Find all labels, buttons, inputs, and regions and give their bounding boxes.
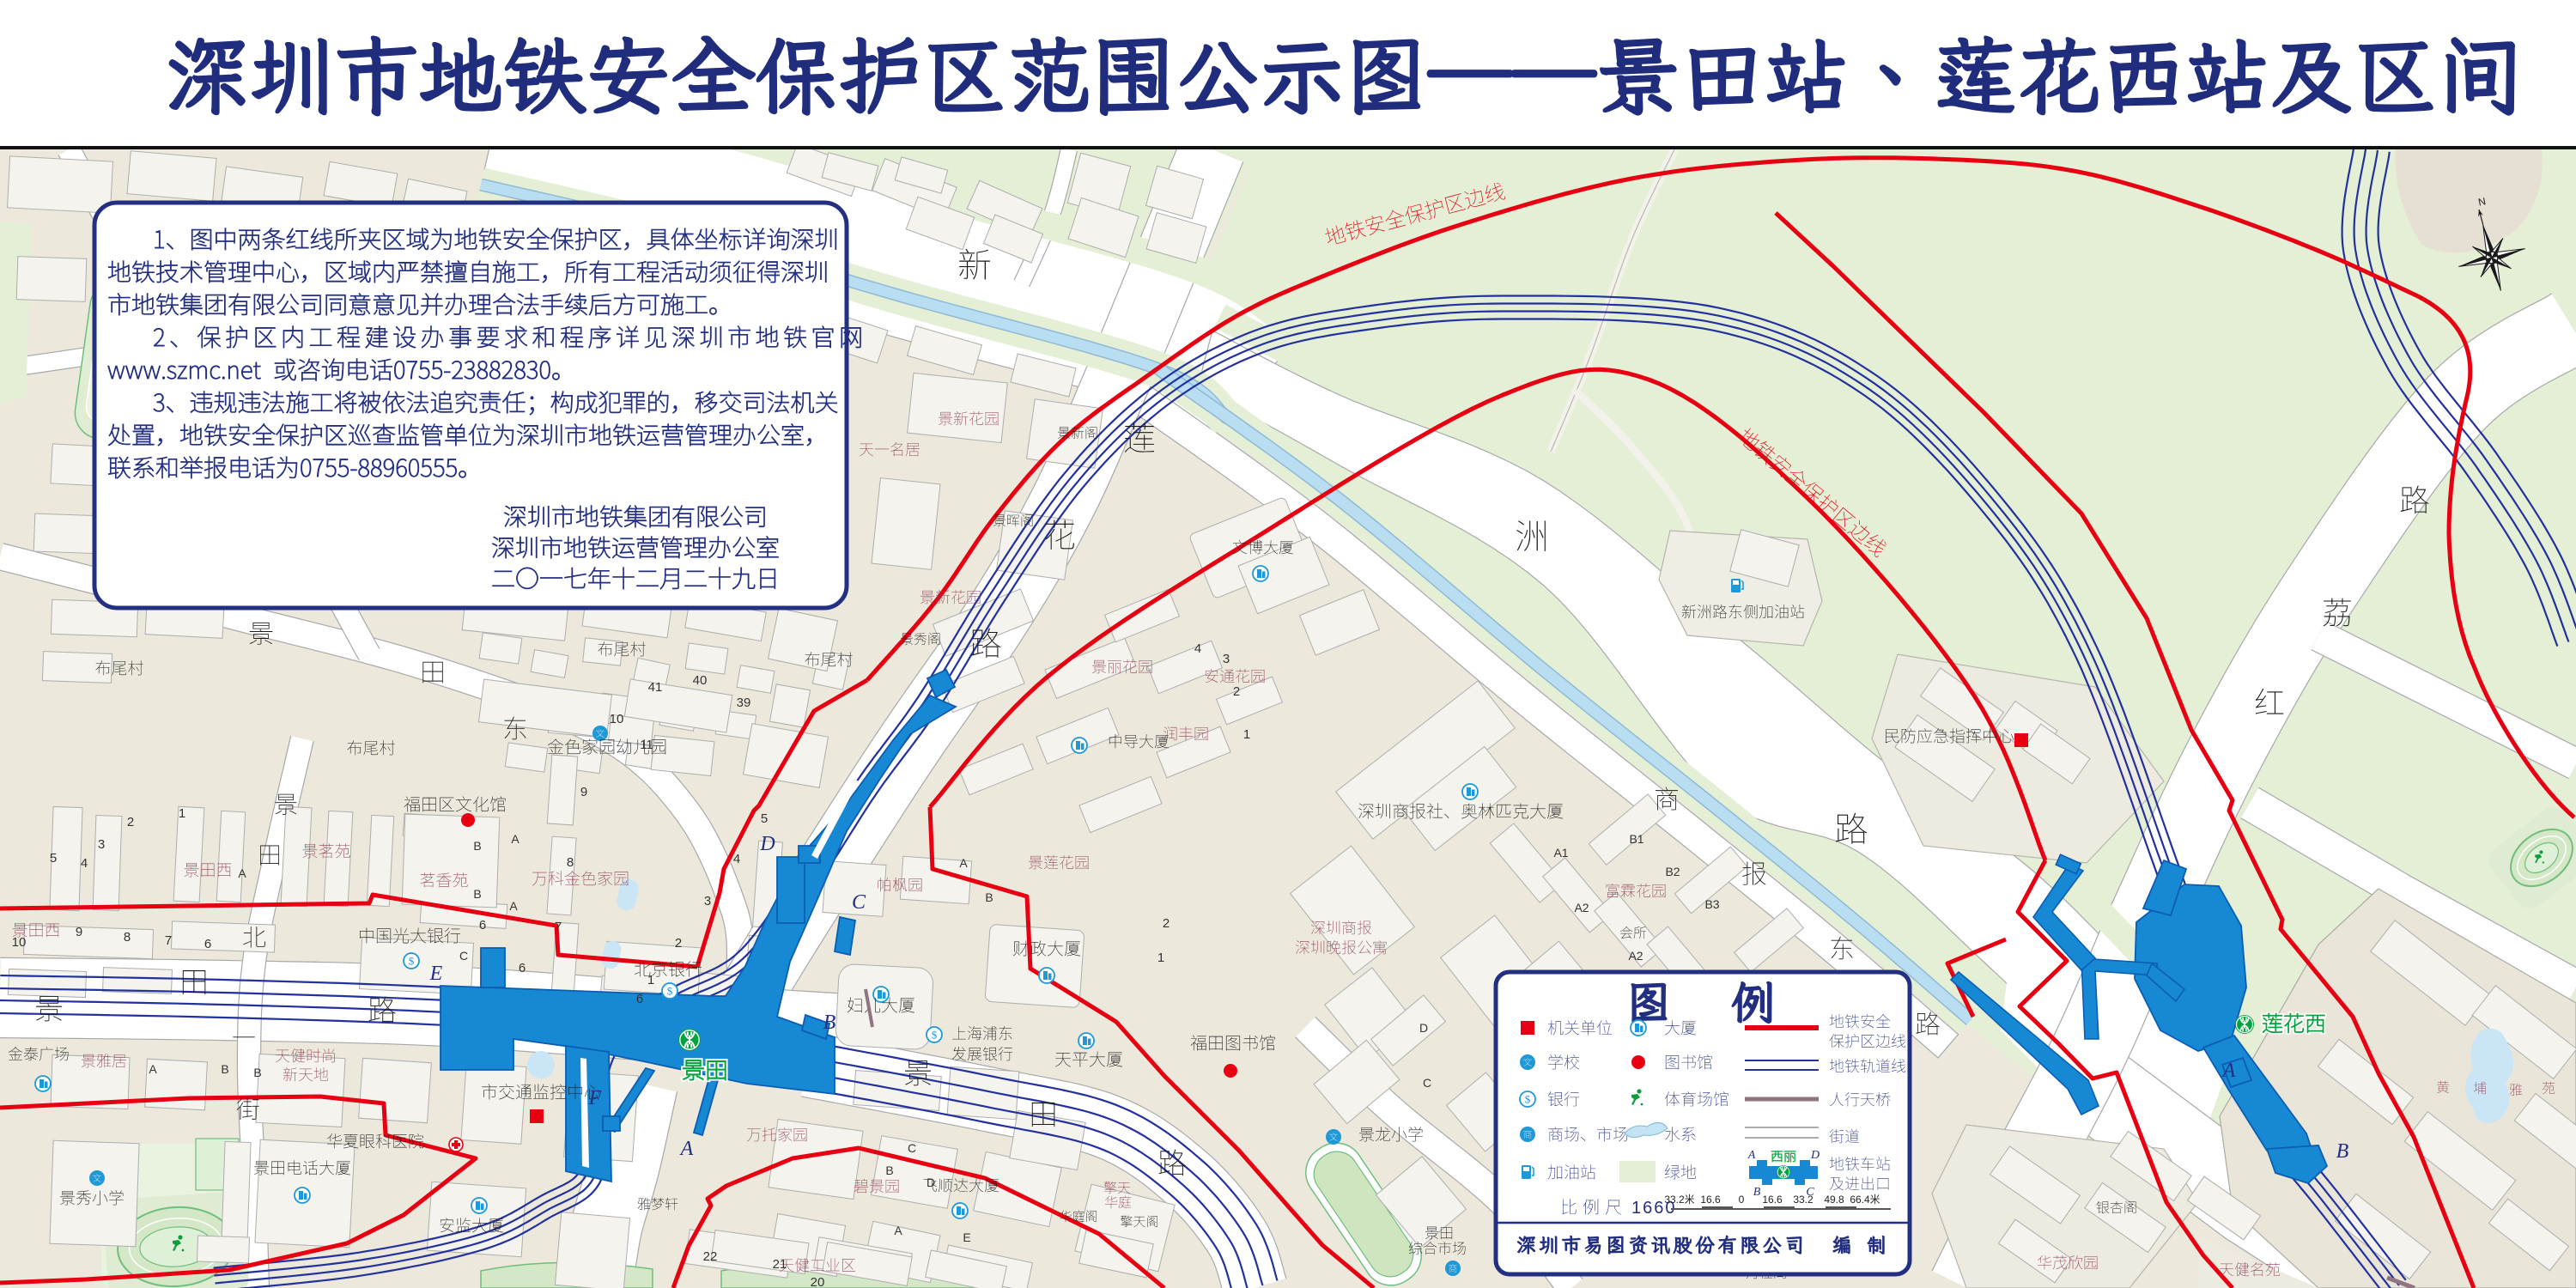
svg-text:9: 9 [76,925,82,939]
svg-text:2: 2 [675,936,682,951]
svg-text:6: 6 [479,918,486,933]
svg-text:A: A [679,1138,694,1160]
svg-text:5: 5 [761,811,768,826]
svg-text:33.2: 33.2 [1793,1194,1814,1206]
svg-text:$: $ [409,955,415,968]
svg-text:B: B [221,1062,228,1076]
svg-text:9: 9 [580,785,587,799]
svg-text:4: 4 [1194,641,1201,656]
svg-text:40: 40 [693,673,708,688]
svg-text:A: A [894,1224,902,1237]
svg-text:3: 3 [1223,652,1230,666]
svg-text:B: B [2336,1140,2349,1163]
svg-text:A2: A2 [1574,901,1589,914]
svg-text:E: E [963,1230,970,1244]
svg-text:A: A [2221,1060,2236,1082]
svg-text:41: 41 [648,680,663,695]
svg-text:$: $ [1525,1093,1531,1106]
svg-text:1: 1 [1157,951,1164,965]
svg-text:A: A [511,832,519,846]
svg-text:D: D [927,1176,935,1189]
svg-text:B: B [985,890,993,904]
svg-text:B2: B2 [1665,865,1680,878]
svg-text:D: D [759,833,775,855]
svg-text:3: 3 [98,837,105,852]
svg-text:4: 4 [81,856,88,871]
svg-text:D: D [1419,1021,1428,1035]
svg-text:10: 10 [610,712,624,726]
svg-text:$: $ [667,985,673,998]
svg-text:66.4米: 66.4米 [1850,1194,1880,1206]
svg-text:B: B [253,1066,261,1079]
svg-text:20: 20 [811,1275,825,1288]
svg-text:1: 1 [1243,727,1250,742]
svg-text:A1: A1 [1553,846,1568,860]
svg-text:E: E [429,963,443,985]
svg-text:F: F [588,1087,602,1109]
svg-text:2: 2 [1163,916,1170,931]
svg-text:16.6: 16.6 [1700,1194,1721,1206]
svg-text:B: B [473,839,481,853]
svg-text:C: C [908,1141,916,1155]
svg-text:B3: B3 [1704,897,1719,911]
svg-text:B: B [885,1163,893,1177]
svg-text:16.6: 16.6 [1762,1194,1783,1206]
svg-text:1: 1 [647,973,654,987]
svg-text:49.8: 49.8 [1824,1194,1844,1206]
svg-text:4: 4 [733,852,740,866]
svg-text:$: $ [932,1029,938,1042]
svg-text:21: 21 [773,1257,787,1272]
svg-text:A: A [238,866,246,880]
svg-text:6: 6 [204,937,211,951]
svg-text:A2: A2 [1628,949,1643,963]
svg-text:5: 5 [50,851,57,866]
svg-text:7: 7 [555,920,562,934]
svg-text:6: 6 [636,992,643,1006]
svg-text:3: 3 [704,894,711,908]
svg-text:10: 10 [12,935,27,950]
svg-text:7: 7 [165,933,172,948]
svg-text:0: 0 [1739,1194,1745,1206]
svg-text:11: 11 [640,738,653,752]
svg-text:2: 2 [1233,684,1240,699]
svg-text:1: 1 [179,806,185,821]
svg-text:D: D [1810,1149,1820,1162]
svg-text:C: C [459,949,468,963]
svg-text:39: 39 [737,696,751,710]
svg-text:B: B [473,887,481,901]
svg-text:B: B [823,1012,836,1034]
svg-text:33.2米: 33.2米 [1664,1194,1694,1206]
svg-text:8: 8 [124,930,131,945]
svg-text:6: 6 [519,961,526,975]
svg-text:B1: B1 [1629,832,1643,846]
svg-text:A: A [959,856,968,870]
svg-text:8: 8 [567,855,574,870]
svg-text:22: 22 [703,1249,718,1264]
svg-text:C: C [852,891,866,914]
svg-text:C: C [1423,1076,1431,1090]
svg-text:A: A [509,899,518,913]
svg-text:A: A [1747,1149,1756,1162]
svg-text:A: A [149,1062,157,1076]
svg-text:2: 2 [127,815,134,829]
svg-text:B: B [1753,1186,1761,1199]
